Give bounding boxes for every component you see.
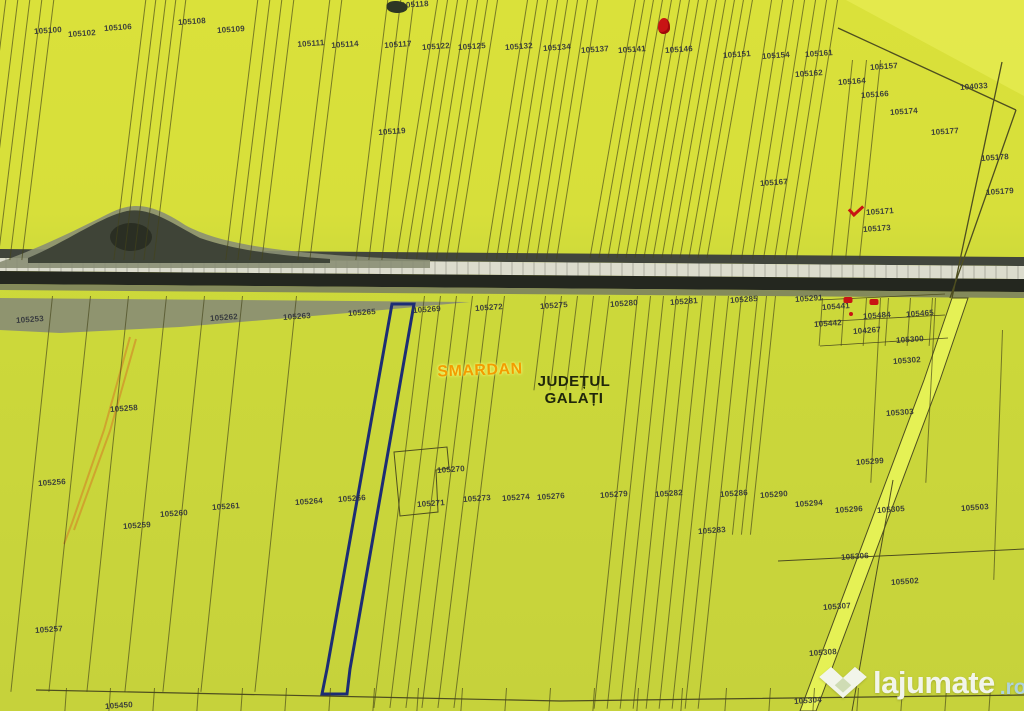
county-label-line2: GALAȚI [538,390,611,407]
watermark-tld-text: .ro [1000,677,1024,699]
red-check-marker [848,201,864,217]
cadastral-map[interactable]: 1051001051021051061051081051091051111051… [0,0,1024,711]
dark-glyph-marker [387,1,408,13]
lajumate-logo-icon [818,666,868,699]
markers-layer [0,0,1024,711]
red-balloon-marker [658,18,670,34]
county-label: JUDEȚUL GALAȚI [538,373,611,408]
red-dot-marker [849,312,853,316]
red-patch-marker [870,299,879,305]
county-label-line1: JUDEȚUL [538,373,611,390]
locality-label-smardan: SMARDAN [437,361,523,382]
red-patch-marker [844,297,853,303]
watermark-brand-text: lajumate [873,667,995,698]
lajumate-watermark[interactable]: lajumate.ro [818,666,1024,699]
